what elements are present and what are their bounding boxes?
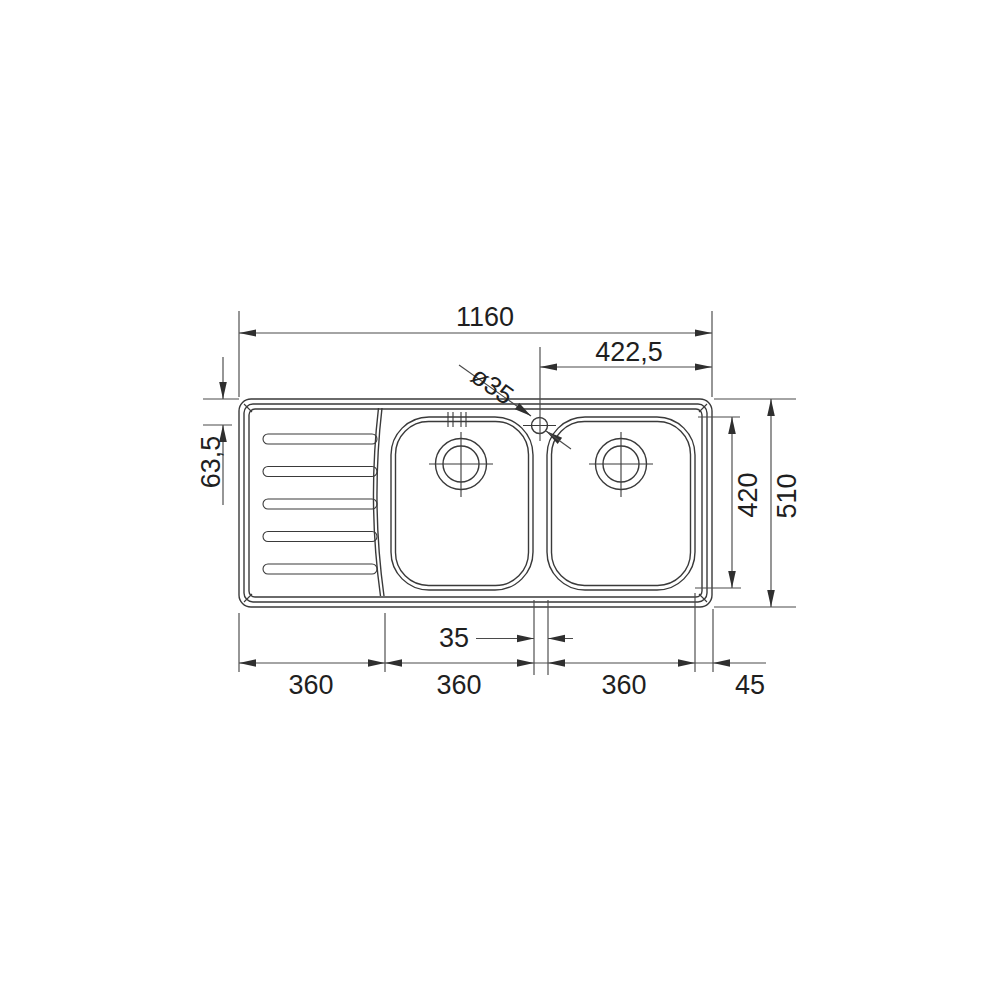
- chain-arrow-left-end: [239, 659, 256, 667]
- dim-bowl-depth: 420: [695, 417, 763, 588]
- dim-drainer-width-label: 360: [288, 670, 333, 700]
- chain-arrow-bowl2-right: [678, 659, 695, 667]
- chain-arrow-bowl1-right: [517, 659, 534, 667]
- dim-total-depth-arrow-bottom: [767, 590, 775, 607]
- dim-left-bowl-width-label: 360: [436, 670, 481, 700]
- sink-outer-edge: [239, 399, 712, 607]
- dim-edge-to-bowl-label: 63,5: [196, 436, 226, 489]
- sink-dimension-drawing: 1160 422,5 ø35 63,5: [0, 0, 1000, 1000]
- chain-arrow-drainer-right: [368, 659, 385, 667]
- dim-total-depth-label: 510: [772, 473, 802, 518]
- dim-edge-to-bowl: 63,5: [196, 357, 239, 505]
- dim-tap-offset-arrow-left: [540, 363, 557, 370]
- left-bowl-outer-edge: [391, 417, 533, 590]
- right-bowl: [547, 417, 695, 590]
- drainboard-ridge-1: [263, 434, 377, 444]
- dim-bowl-gap: 35: [439, 623, 573, 653]
- dim-right-bowl-width-label: 360: [601, 670, 646, 700]
- dim-bowl-gap-label: 35: [439, 623, 469, 653]
- chain-arrow-right-end: [713, 659, 730, 667]
- drainboard-ridge-2: [263, 467, 377, 477]
- dim-edge-to-bowl-extension-lines: [203, 399, 239, 425]
- sink-outline: [239, 399, 712, 607]
- chain-arrow-bowl2-left: [548, 659, 565, 667]
- dim-bowl-depth-arrow-top: [728, 417, 736, 434]
- dim-total-depth-arrow-top: [767, 399, 775, 416]
- dim-total-width-arrow-right: [695, 329, 712, 336]
- chain-arrow-bowl1-left: [385, 659, 402, 667]
- dim-tap-offset-label: 422,5: [595, 337, 663, 367]
- sink-technical-drawing-page: 1160 422,5 ø35 63,5: [0, 0, 1000, 1000]
- dim-bowl-depth-arrow-bottom: [728, 571, 736, 588]
- left-drain-crosshair: [429, 432, 493, 497]
- right-drain-crosshair: [589, 432, 653, 497]
- dim-tap-offset-arrow-right: [695, 363, 712, 370]
- dim-tap-offset: 422,5: [540, 337, 712, 441]
- drainboard-ridge-4: [263, 532, 377, 542]
- left-bowl: [391, 412, 533, 590]
- left-bowl-overflow-marks: [448, 412, 466, 427]
- dim-bowl-gap-arrow-right: [548, 635, 565, 643]
- dim-bottom-chain: 360 360 360 45: [239, 593, 766, 700]
- drainboard-ridge-5: [263, 564, 377, 574]
- dim-edge-to-bowl-arrow-top: [219, 382, 227, 399]
- drainboard: [263, 408, 384, 596]
- dim-total-width-arrow-left: [239, 329, 256, 336]
- dim-bowl-gap-arrow-left: [517, 635, 534, 643]
- dim-right-margin-label: 45: [735, 670, 765, 700]
- drainboard-ridge-3: [263, 499, 377, 509]
- dim-tap-diameter-label: ø35: [466, 360, 520, 410]
- dim-total-width-label: 1160: [456, 302, 514, 332]
- dim-bowl-depth-label: 420: [733, 472, 763, 517]
- drainboard-edge-outer-curve: [377, 408, 384, 596]
- sink-rim-inner-edge: [249, 409, 702, 597]
